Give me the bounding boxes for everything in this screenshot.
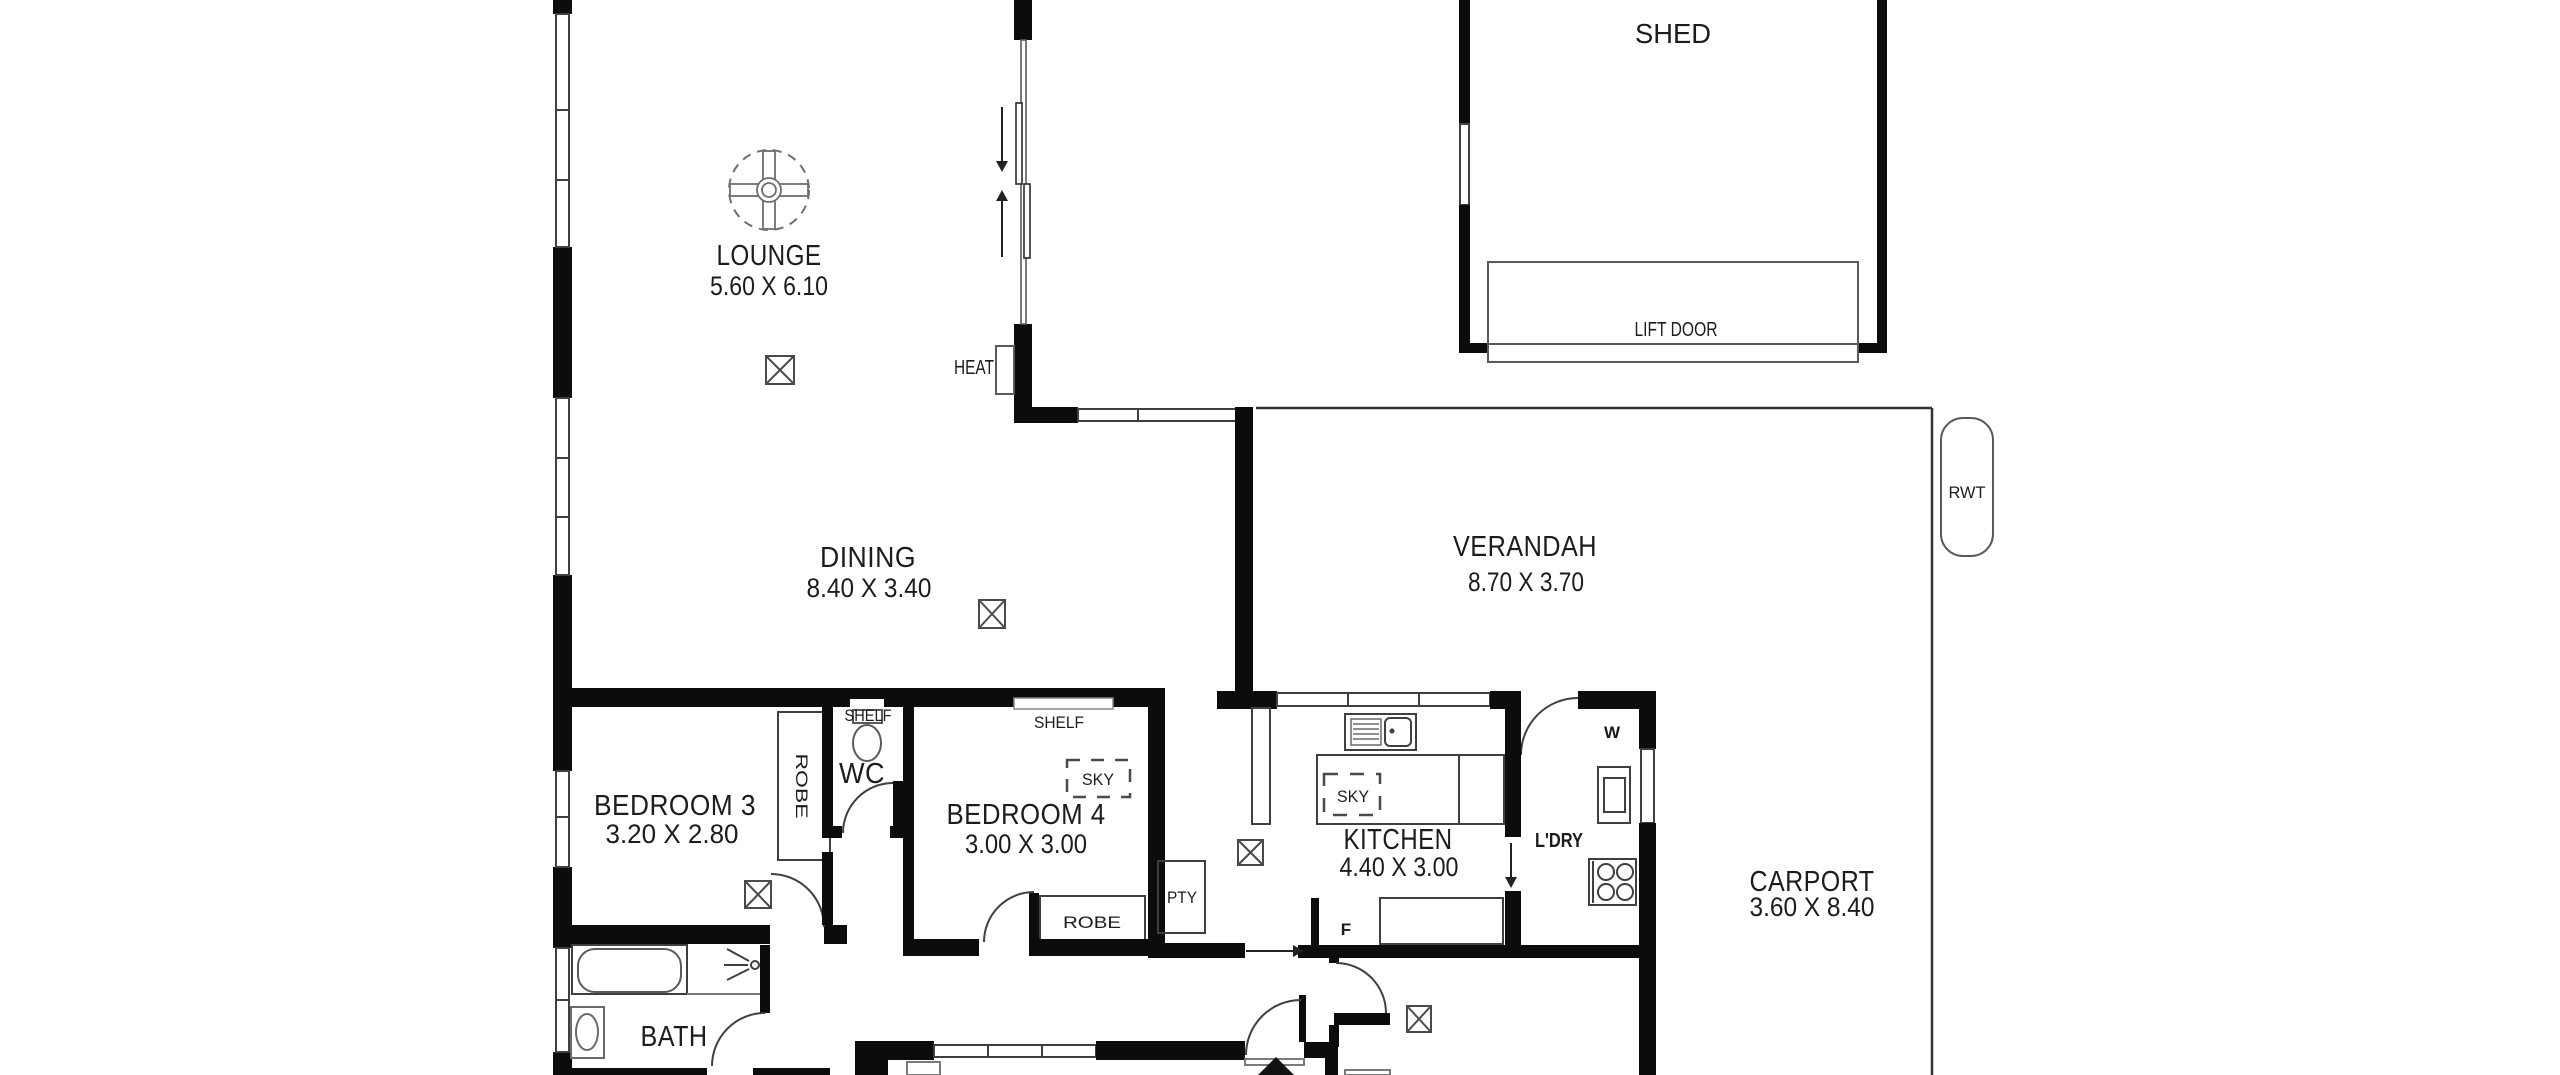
svg-text:LOUNGE: LOUNGE [717,240,822,272]
svg-text:BEDROOM 3: BEDROOM 3 [594,790,756,822]
svg-text:5.60 X 6.10: 5.60 X 6.10 [710,271,828,301]
svg-text:SHELF: SHELF [1034,713,1084,732]
svg-text:L'DRY: L'DRY [1535,830,1584,852]
svg-text:3.20 X 2.80: 3.20 X 2.80 [606,819,739,849]
svg-text:RWT: RWT [1949,483,1986,502]
svg-text:HEAT: HEAT [954,357,994,379]
svg-text:8.70 X 3.70: 8.70 X 3.70 [1468,567,1584,597]
svg-text:SHELF: SHELF [845,706,892,725]
svg-text:SKY: SKY [1337,787,1369,806]
svg-text:DINING: DINING [820,542,916,574]
svg-text:ROBE: ROBE [792,754,811,819]
svg-text:8.40 X 3.40: 8.40 X 3.40 [807,573,932,603]
svg-text:3.00 X 3.00: 3.00 X 3.00 [965,829,1087,859]
svg-text:LIFT DOOR: LIFT DOOR [1635,319,1718,341]
svg-text:4.40 X 3.00: 4.40 X 3.00 [1340,852,1459,882]
svg-text:PTY: PTY [1167,888,1197,907]
svg-text:BEDROOM 4: BEDROOM 4 [947,799,1106,831]
svg-text:SHED: SHED [1635,18,1711,49]
svg-text:VERANDAH: VERANDAH [1453,531,1597,563]
svg-text:SKY: SKY [1082,770,1114,789]
svg-text:ROBE: ROBE [1063,913,1121,932]
svg-text:F: F [1341,920,1351,939]
svg-text:W: W [1604,723,1621,742]
svg-text:BATH: BATH [641,1021,708,1053]
svg-text:3.60 X 8.40: 3.60 X 8.40 [1750,892,1875,922]
